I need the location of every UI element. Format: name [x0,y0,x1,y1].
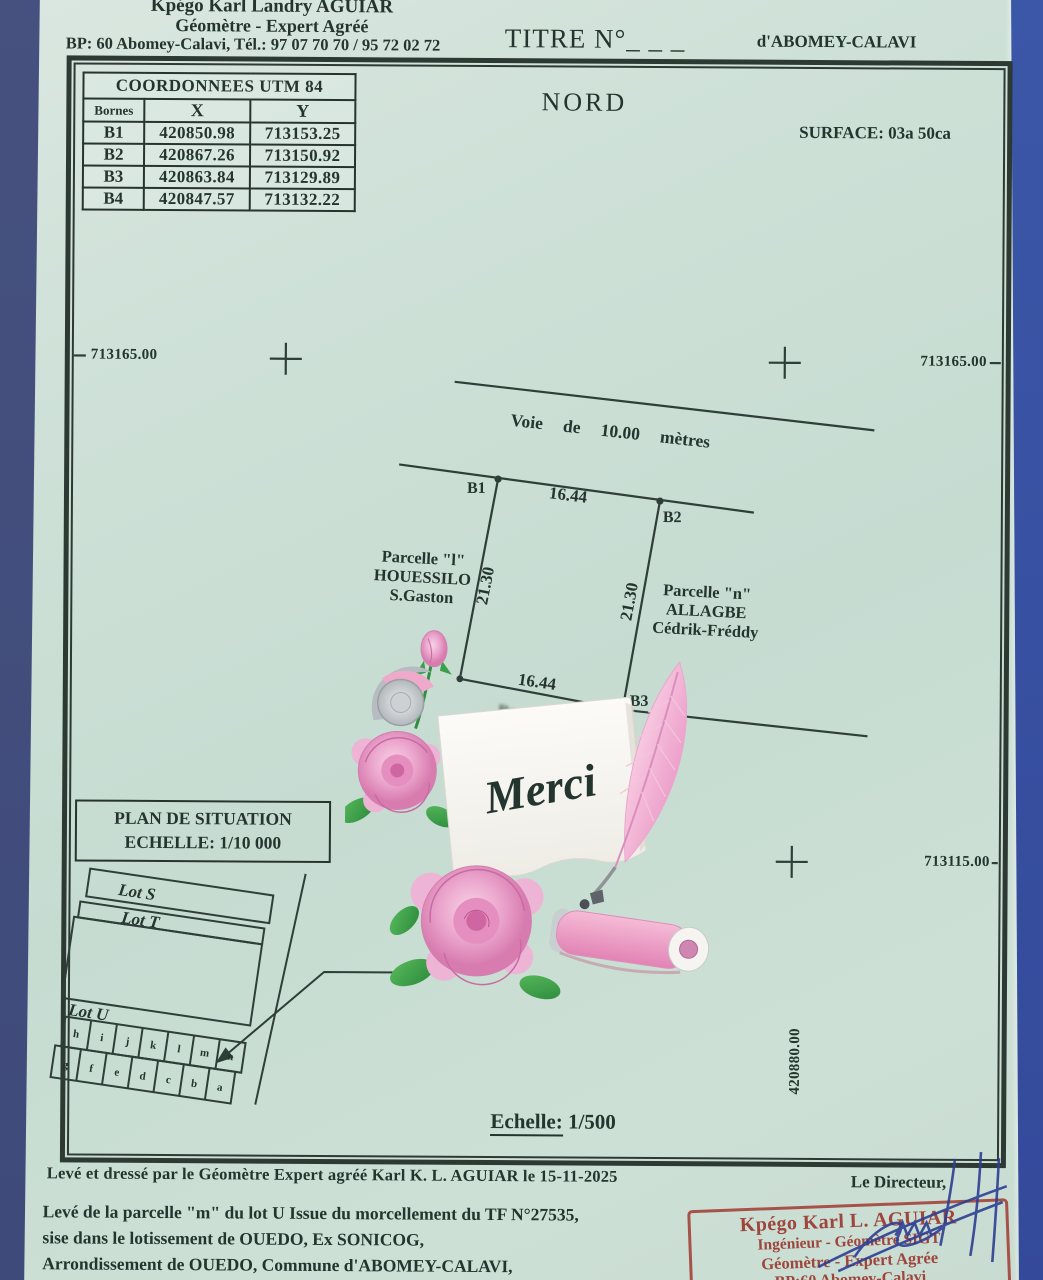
table-header-row: Bornes X Y [83,99,355,124]
cell-label: i [99,1032,104,1044]
borne-id: B1 [83,122,144,144]
cell-label: n [226,1051,234,1064]
grid-label-top-left: 713165.00 [91,347,158,364]
x-value: 420850.98 [144,122,250,145]
grid-cross [769,347,801,379]
borne-b1-point [494,475,501,482]
situation-scale: ECHELLE: 1/10 000 [77,829,329,855]
situation-boundary-line [255,874,305,1105]
cell-label: h [72,1028,80,1041]
cell-label: d [139,1070,147,1083]
table-row: B4 420847.57 713132.22 [83,188,355,212]
attestation-line: Levé et dressé par le Géomètre Expert ag… [47,1163,618,1186]
situation-title-box: PLAN DE SITUATION ECHELLE: 1/10 000 [75,799,331,863]
grid-label-mid-right: 713115.00 [906,854,990,872]
scanned-survey-document: Kpégo Karl Landry AGUIAR Géomètre - Expe… [0,0,1043,1280]
director-label: Le Directeur, [851,1172,946,1193]
parcel-left-label: Parcelle "l" HOUESSILO S.Gaston [345,545,500,609]
scale-label: Echelle: [490,1109,562,1136]
corner-b2-label: B2 [663,509,682,527]
cell-label: m [199,1047,210,1060]
grid-cross [776,846,808,878]
grid-label-bottom-vertical: 420880.00 [787,1015,805,1107]
situation-title: PLAN DE SITUATION [77,805,329,831]
col-header-bornes: Bornes [83,99,144,122]
merci-scroll: Merci [438,697,649,882]
description-line: sise dans le lotissement de OUEDO, Ex SO… [42,1224,702,1254]
description-line: Arrondissement de OUEDO, Commune d'ABOME… [42,1250,702,1280]
y-value: 713150.92 [250,145,355,168]
cell-label: c [165,1074,172,1087]
coordinates-table: COORDONNEES UTM 84 Bornes X Y B1 420850.… [82,72,357,213]
cell-label: b [190,1078,198,1091]
x-value: 420867.26 [144,144,250,167]
x-value: 420863.84 [144,166,250,189]
cell-label: l [177,1043,182,1055]
table-title: COORDONNEES UTM 84 [83,73,355,101]
lot-s-block [86,869,273,924]
cell-label: f [88,1063,94,1075]
description-line: Levé de la parcelle "m" du lot U Issue d… [43,1198,703,1228]
cell-label: k [149,1039,158,1052]
pink-roll-decoration [547,907,712,981]
cell-label: e [114,1066,121,1079]
grid-label-top-right: 713165.00 [903,354,987,372]
col-header-y: Y [250,100,355,124]
table-row: B3 420863.84 713129.89 [83,166,355,190]
x-value: 420847.57 [144,188,250,211]
grid-cross [270,343,302,375]
col-header-x: X [144,99,250,123]
corner-b1-label: B1 [467,480,486,498]
table-row: B2 420867.26 713150.92 [83,144,355,168]
cell-label: a [216,1081,224,1094]
cell-label: j [124,1036,130,1049]
table-row: B1 420850.98 713153.25 [83,122,355,146]
y-value: 713129.89 [250,167,355,190]
lot-t-label: Lot T [119,908,161,933]
merci-sticker: Merci [344,620,746,1022]
borne-id: B2 [83,144,144,166]
borne-b2-point [656,497,663,504]
y-value: 713153.25 [250,123,355,146]
borne-id: B3 [83,166,144,188]
borne-id: B4 [83,188,144,210]
scale-value: 1/500 [568,1109,616,1133]
surveyor-stamp: Kpégo Karl L. AGUIAR Ingénieur - Géomètr… [687,1198,1012,1280]
cell-label: g [62,1059,70,1072]
description-paragraph: Levé de la parcelle "m" du lot U Issue d… [42,1198,703,1280]
scale-note: Echelle: 1/500 [428,1109,678,1136]
table-title-row: COORDONNEES UTM 84 [83,73,355,101]
situation-map: Lot S Lot T Lot U h i j k l m n g f e d … [51,867,274,1105]
y-value: 713132.22 [250,189,355,212]
big-rose-decoration [384,865,564,1003]
